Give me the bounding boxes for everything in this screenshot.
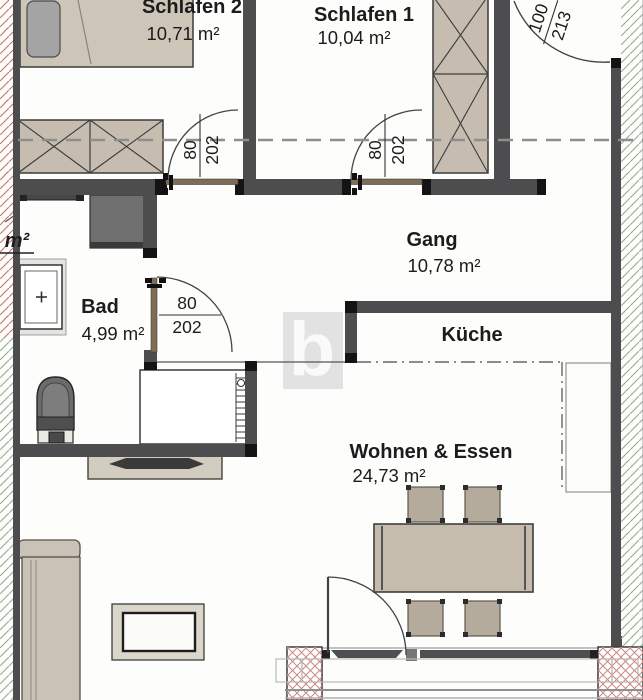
dim-height: 202 (172, 317, 201, 337)
toilet (37, 377, 74, 443)
dim-width: 80 (180, 140, 200, 160)
dim-width: 80 (177, 293, 197, 313)
floor-plan: b (0, 0, 643, 700)
tv (109, 458, 204, 469)
room-area-schlafen-2: 10,71 m² (146, 23, 219, 44)
dim-height: 202 (202, 135, 222, 164)
installation-shaft (90, 195, 151, 248)
masonry-pier-right (598, 647, 643, 700)
window (420, 650, 598, 658)
room-label-wohnen: Wohnen & Essen (350, 441, 513, 463)
room-label-gang: Gang (406, 229, 457, 251)
room-label-bad: Bad (81, 296, 119, 318)
dining-table (374, 524, 533, 592)
chair (463, 485, 502, 523)
room-label-schlafen-2: Schlafen 2 (142, 0, 242, 18)
watermark-letter: b (289, 307, 335, 392)
wall-left (13, 0, 20, 700)
room-area-wohnen: 24,73 m² (352, 465, 425, 486)
wall-right (611, 62, 621, 645)
room-label-kueche: Küche (441, 324, 502, 346)
shower (140, 370, 248, 444)
room-area-gang: 10,78 m² (407, 255, 480, 276)
exterior-wall-hatch-right (621, 0, 643, 648)
exterior-wall-hatch-left (0, 0, 13, 700)
chair (406, 599, 445, 637)
wardrobe-schlafen-1 (433, 0, 488, 173)
balcony-door (331, 650, 403, 658)
dim-width: 80 (365, 140, 385, 160)
room-area-bad: 4,99 m² (82, 323, 145, 344)
dim-height: 202 (388, 135, 408, 164)
sofa (18, 540, 80, 700)
washbasin (17, 259, 66, 335)
cut-area-label: m² (5, 230, 31, 252)
room-label-schlafen-1: Schlafen 1 (314, 4, 414, 26)
room-area-schlafen-1: 10,04 m² (317, 27, 390, 48)
watermark: b (283, 307, 343, 392)
chair (406, 485, 445, 523)
coffee-table (112, 604, 204, 660)
wardrobe-schlafen-2 (18, 120, 163, 173)
chair (463, 599, 502, 637)
masonry-pier-left (287, 647, 322, 700)
